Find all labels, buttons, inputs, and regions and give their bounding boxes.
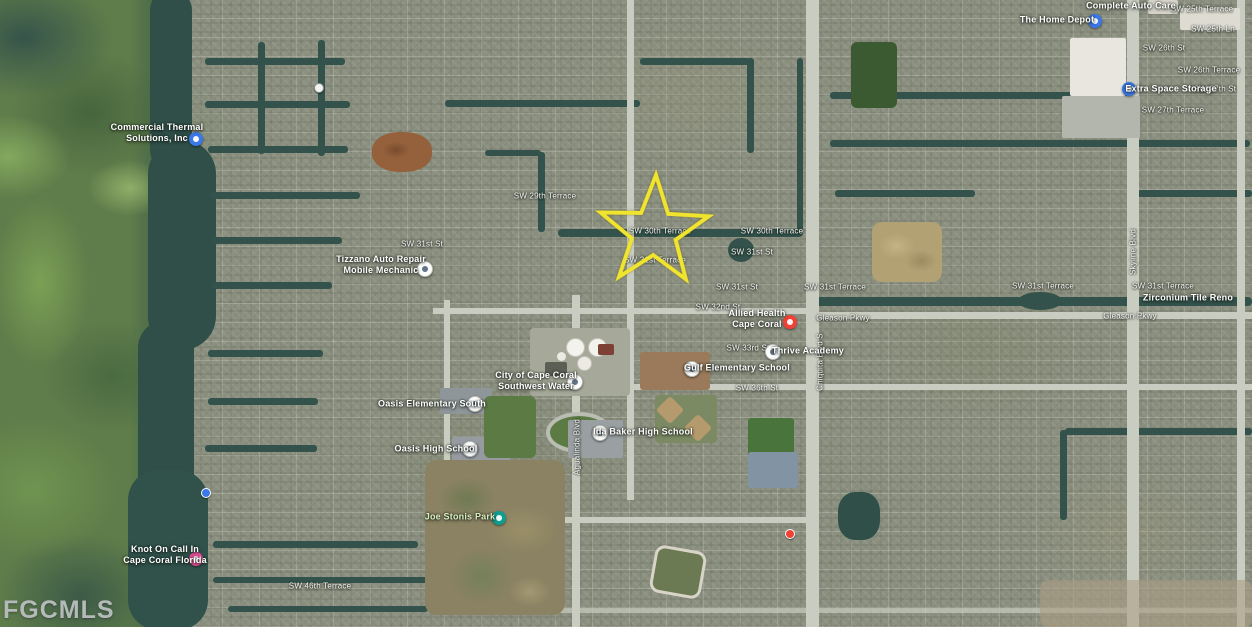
street-label: SW 29th Terrace — [514, 192, 576, 201]
poi-label[interactable]: Gulf Elementary School — [684, 363, 790, 374]
canal — [830, 140, 1250, 147]
poi-label[interactable]: Oasis High School — [395, 444, 478, 455]
canal — [208, 350, 323, 357]
street-label: SW 31st St — [716, 283, 758, 292]
canal — [318, 40, 325, 156]
poi-label[interactable]: City of Cape CoralSouthwest Water — [495, 370, 577, 392]
street-label: Chiquita Blvd S — [816, 333, 825, 391]
canal — [640, 58, 750, 65]
street-label: Skyline Blvd — [1129, 229, 1138, 275]
canal — [445, 100, 640, 107]
sand-area — [1040, 580, 1252, 627]
street-label: Agualinda Blvd — [573, 419, 582, 475]
pond — [1018, 292, 1062, 310]
mls-watermark: FGCMLS — [3, 596, 115, 625]
canal — [835, 190, 975, 197]
street-label: SW 27th Terrace — [1142, 106, 1204, 115]
canal — [212, 282, 332, 289]
dirt-lot — [372, 132, 432, 172]
street-label: SW 30th Terrace — [629, 227, 691, 236]
poi-label[interactable]: Tizzano Auto RepairMobile Mechanic — [336, 254, 426, 276]
poi-label[interactable]: Knot On Call InCape Coral Florida — [123, 544, 207, 566]
canal — [797, 58, 803, 233]
street-label: SW 46th Terrace — [289, 582, 351, 591]
street-label: SW 33rd St — [727, 344, 770, 353]
street-label: SW 26th Terrace — [1178, 66, 1240, 75]
poi-label[interactable]: The Home Depot — [1020, 15, 1094, 26]
road — [810, 312, 1252, 319]
street-label: SW 36th St — [736, 384, 778, 393]
poi-label[interactable]: Zirconium Tile Reno — [1143, 293, 1233, 304]
storage-tank — [566, 338, 585, 357]
poi-dot-marker[interactable] — [314, 83, 324, 93]
street-label: SW 31st Terrace — [624, 256, 686, 265]
river — [148, 140, 216, 350]
canal — [485, 150, 541, 156]
road — [627, 0, 634, 500]
street-label: SW 31st Terrace — [804, 283, 866, 292]
storage-tank — [577, 356, 592, 371]
scrub-park — [425, 460, 565, 615]
canal — [1135, 190, 1252, 197]
street-label: SW 30th Terrace — [741, 227, 803, 236]
fort-building — [648, 544, 708, 600]
park-green — [484, 396, 536, 458]
poi-dot-marker[interactable] — [785, 529, 795, 539]
pond — [851, 42, 897, 108]
street-label: SW 25th Ln — [1191, 25, 1235, 34]
poi-label[interactable]: Extra Space Storage — [1125, 84, 1216, 95]
canal — [747, 58, 754, 153]
street-label: SW 31st Terrace — [1012, 282, 1074, 291]
canal — [228, 606, 428, 612]
big-box-store — [1070, 38, 1126, 96]
canal — [258, 42, 265, 154]
canal — [212, 237, 342, 244]
poi-label[interactable]: Oasis Elementary South — [378, 399, 486, 410]
canal — [208, 146, 348, 153]
street-label: SW 31st Terrace — [1132, 282, 1194, 291]
dirt-lot — [872, 222, 942, 282]
canal — [208, 398, 318, 405]
canal — [210, 192, 360, 199]
street-label: Gleason Pkwy — [1103, 312, 1157, 321]
street-label: Gleason Pkwy — [816, 314, 870, 323]
street-label: SW 26th St — [1143, 44, 1185, 53]
pond — [838, 492, 880, 540]
poi-label[interactable]: Ida Baker High School — [593, 427, 693, 438]
street-label: SW 31st St — [401, 240, 443, 249]
poi-label[interactable]: Commercial ThermalSolutions, Inc — [111, 122, 204, 144]
storage-tank — [557, 352, 566, 361]
poi-dot-marker[interactable] — [201, 488, 211, 498]
canal — [213, 541, 418, 548]
poi-label[interactable]: Complete Auto Care — [1086, 1, 1176, 12]
poi-label[interactable]: Allied HealthCape Coral — [728, 308, 785, 330]
poi-label[interactable]: Joe Stonis Park — [425, 512, 496, 523]
poi-label[interactable]: Thrive Academy — [772, 346, 844, 357]
condo-building — [748, 452, 798, 488]
parking-lot — [1062, 96, 1140, 138]
street-label: SW 25th Terrace — [1171, 5, 1233, 14]
satellite-map-canvas[interactable]: FGCMLS SW 29th TerraceSW 30th TerraceSW … — [0, 0, 1252, 627]
canal — [1060, 430, 1067, 520]
canal — [205, 445, 317, 452]
street-label: SW 31st St — [731, 248, 773, 257]
plant-building — [598, 344, 614, 355]
canal — [205, 101, 350, 108]
canal — [1065, 428, 1252, 435]
